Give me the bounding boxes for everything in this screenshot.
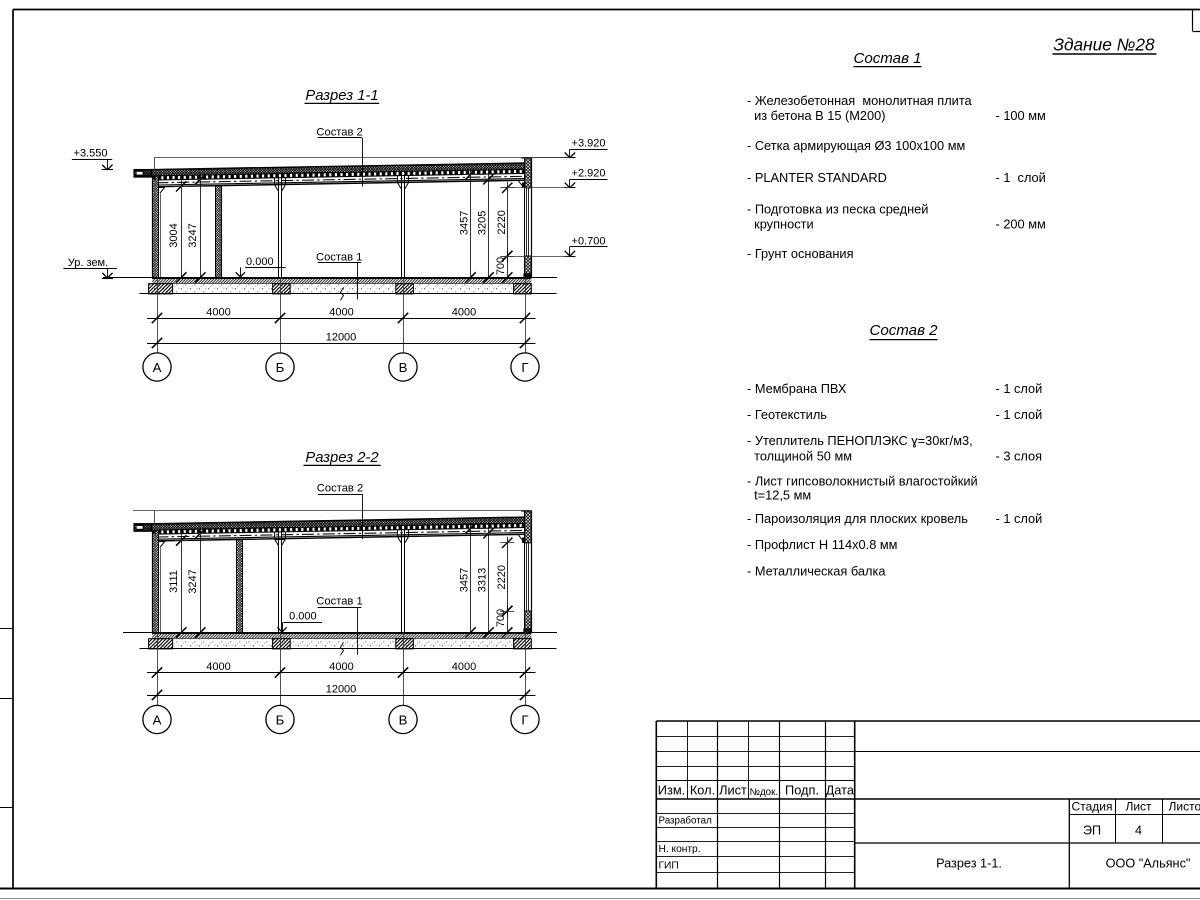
svg-text:Состав 1: Состав 1 [853,50,921,67]
svg-text:- 1 слой: - 1 слой [996,170,1046,185]
svg-text:- 100 мм: - 100 мм [996,108,1046,123]
svg-text:2220: 2220 [496,565,508,589]
svg-text:- 1 слой: - 1 слой [996,407,1043,422]
svg-text:- 1 слой: - 1 слой [996,511,1043,526]
svg-text:Подп.: Подп. [785,783,819,798]
svg-text:Состав 1: Состав 1 [316,252,362,264]
svg-text:0.000: 0.000 [246,256,274,268]
svg-text:Лист: Лист [1125,800,1152,814]
svg-text:2220: 2220 [496,210,508,234]
svg-text:крупности: крупности [747,217,814,232]
svg-text:Состав 2: Состав 2 [316,126,362,138]
svg-text:4000: 4000 [452,307,476,319]
svg-text:В: В [399,360,408,375]
svg-text:Стадия: Стадия [1072,800,1113,814]
svg-text:- 1 слой: - 1 слой [996,381,1043,396]
svg-text:+2.920: +2.920 [572,167,606,179]
svg-text:700: 700 [495,257,507,275]
svg-text:- Металлическая балка: - Металлическая балка [747,563,886,578]
svg-text:Состав 1: Состав 1 [316,596,362,608]
svg-text:+3.920: +3.920 [572,137,606,149]
svg-text:Г: Г [521,360,528,375]
svg-text:+0.700: +0.700 [572,236,606,248]
svg-text:Изм.: Изм. [658,783,685,798]
svg-text:- Железобетонная монолитная п: - Железобетонная монолитная плита [747,93,973,108]
svg-text:- Утеплитель ПЕНОПЛЭКС ɣ=30кг/: - Утеплитель ПЕНОПЛЭКС ɣ=30кг/м3, [747,433,973,448]
svg-text:3247: 3247 [187,569,199,593]
svg-text:+3.550: +3.550 [74,148,108,160]
svg-text:Б: Б [276,712,285,727]
svg-text:- 3 слоя: - 3 слоя [996,448,1043,463]
svg-text:4000: 4000 [329,661,353,673]
svg-text:Ур. зем.: Ур. зем. [68,257,108,269]
svg-text:- Лист гипсоволокнистый влагос: - Лист гипсоволокнистый влагостойкий [747,473,978,488]
svg-text:4000: 4000 [206,307,230,319]
svg-text:ГИП: ГИП [659,860,679,871]
svg-text:- Грунт основания: - Грунт основания [747,246,854,261]
svg-text:- PLANTER STANDARD: - PLANTER STANDARD [747,170,887,185]
svg-text:12000: 12000 [326,332,357,344]
svg-text:Дата: Дата [826,783,855,798]
svg-text:- Пароизоляция для плоских кро: - Пароизоляция для плоских кровель [747,511,968,526]
svg-text:Разрез 2-2: Разрез 2-2 [305,450,379,466]
svg-text:Разработал: Разработал [659,816,713,827]
svg-text:3457: 3457 [458,568,470,592]
svg-text:ООО "Альянс": ООО "Альянс" [1106,857,1191,871]
svg-text:Кол.: Кол. [690,783,715,798]
svg-text:4000: 4000 [329,307,353,319]
svg-text:3247: 3247 [187,223,199,247]
svg-text:Б: Б [276,360,285,375]
svg-text:Состав 2: Состав 2 [317,483,363,495]
svg-text:А: А [153,360,162,375]
svg-text:- Профлист Н 114х0.8 мм: - Профлист Н 114х0.8 мм [747,537,897,552]
svg-text:Разрез 1-1.: Разрез 1-1. [936,857,1002,871]
svg-text:А: А [153,712,162,727]
svg-text:из бетона В 15 (М200): из бетона В 15 (М200) [747,108,886,123]
svg-text:4000: 4000 [206,661,230,673]
svg-text:t=12,5 мм: t=12,5 мм [747,487,811,502]
svg-text:3205: 3205 [477,211,489,235]
svg-text:- 200 мм: - 200 мм [996,217,1046,232]
svg-text:Листов: Листов [1169,800,1200,814]
svg-text:Разрез 1-1: Разрез 1-1 [305,88,378,104]
svg-text:- Геотекстиль: - Геотекстиль [747,407,827,422]
svg-text:Лист: Лист [719,783,747,798]
svg-text:700: 700 [495,609,507,627]
svg-text:3004: 3004 [168,223,180,247]
svg-text:Здание №28: Здание №28 [1053,34,1155,54]
svg-text:В: В [399,712,408,727]
svg-text:3457: 3457 [458,211,470,235]
svg-text:3111: 3111 [168,570,180,593]
svg-text:Г: Г [521,712,528,727]
svg-text:12000: 12000 [326,684,357,696]
svg-text:толщиной 50 мм: толщиной 50 мм [747,448,852,463]
svg-text:- Мембрана ПВХ: - Мембрана ПВХ [747,381,847,396]
svg-text:Н. контр.: Н. контр. [659,844,701,855]
svg-text:Состав 2: Состав 2 [869,322,938,339]
svg-text:3313: 3313 [477,568,489,592]
svg-text:№док.: №док. [749,787,778,798]
svg-text:0.000: 0.000 [289,611,317,623]
svg-text:- Подготовка из песка средней: - Подготовка из песка средней [747,201,928,216]
svg-text:- Сетка армирующая Ø3 100х100: - Сетка армирующая Ø3 100х100 мм [747,138,965,153]
svg-text:4000: 4000 [452,661,476,673]
svg-text:ЭП: ЭП [1083,824,1101,838]
svg-text:4: 4 [1135,824,1142,838]
